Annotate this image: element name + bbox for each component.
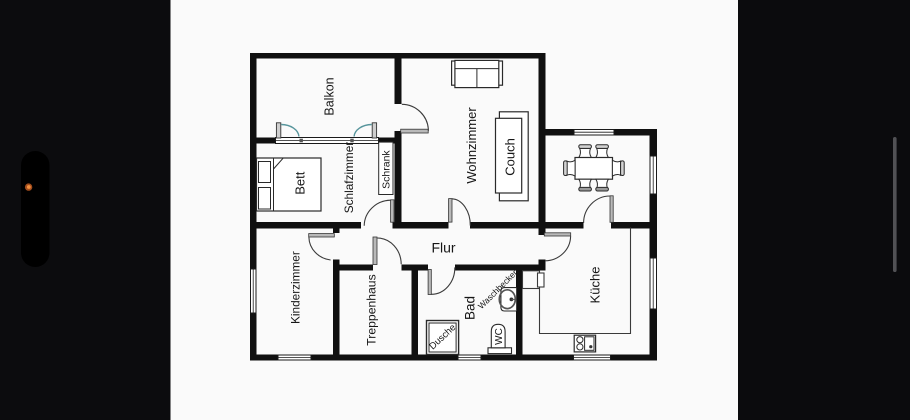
- svg-text:Flur: Flur: [431, 240, 455, 256]
- svg-text:Bett: Bett: [292, 171, 307, 195]
- svg-text:Schlafzimmer: Schlafzimmer: [342, 142, 356, 214]
- svg-text:Schrank: Schrank: [381, 150, 393, 189]
- svg-text:Treppenhaus: Treppenhaus: [364, 274, 378, 345]
- svg-text:Balkon: Balkon: [323, 77, 337, 115]
- svg-text:Wohnzimmer: Wohnzimmer: [464, 107, 479, 184]
- svg-text:Couch: Couch: [502, 138, 517, 176]
- svg-text:Küche: Küche: [587, 267, 602, 304]
- svg-text:Bad: Bad: [463, 296, 478, 320]
- svg-text:WC: WC: [494, 328, 505, 345]
- svg-text:Kinderzimmer: Kinderzimmer: [289, 251, 303, 324]
